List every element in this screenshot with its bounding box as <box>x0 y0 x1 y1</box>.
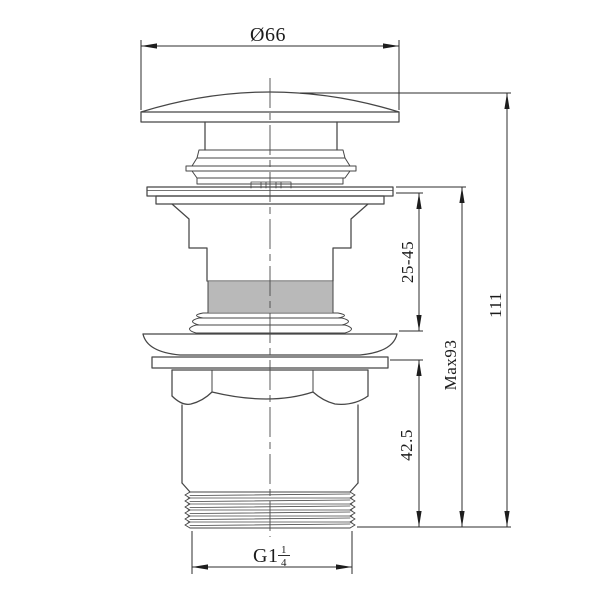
cap-stem <box>205 122 337 150</box>
dim-label-thread-fraction-numerator: 1 <box>281 544 287 556</box>
dim-label-clamp-range: 25-45 <box>398 241 417 283</box>
dim-label-cap-diameter: Ø66 <box>250 24 286 46</box>
dim-label-thread-fraction-denominator: 4 <box>281 557 287 569</box>
dim-lower-height: 42.5 <box>390 360 423 527</box>
dim-label-thread-prefix: G1 <box>253 545 278 567</box>
rubber-gasket <box>190 313 352 333</box>
dim-label-max-height: Max93 <box>441 340 460 391</box>
upper-thread <box>208 281 333 313</box>
dim-max-height: Max93 <box>396 187 466 527</box>
seal-rings <box>186 150 356 188</box>
dim-label-lower-height: 42.5 <box>397 429 416 461</box>
dim-thread-size: G1 1 4 <box>192 531 352 574</box>
dim-label-overall-height: 111 <box>486 292 505 318</box>
dim-clamp-range: 25-45 <box>396 193 423 331</box>
pop-up-drain-diagram: Ø66 111 Max93 25-45 <box>0 0 600 600</box>
technical-drawing-page: Ø66 111 Max93 25-45 <box>0 0 600 600</box>
